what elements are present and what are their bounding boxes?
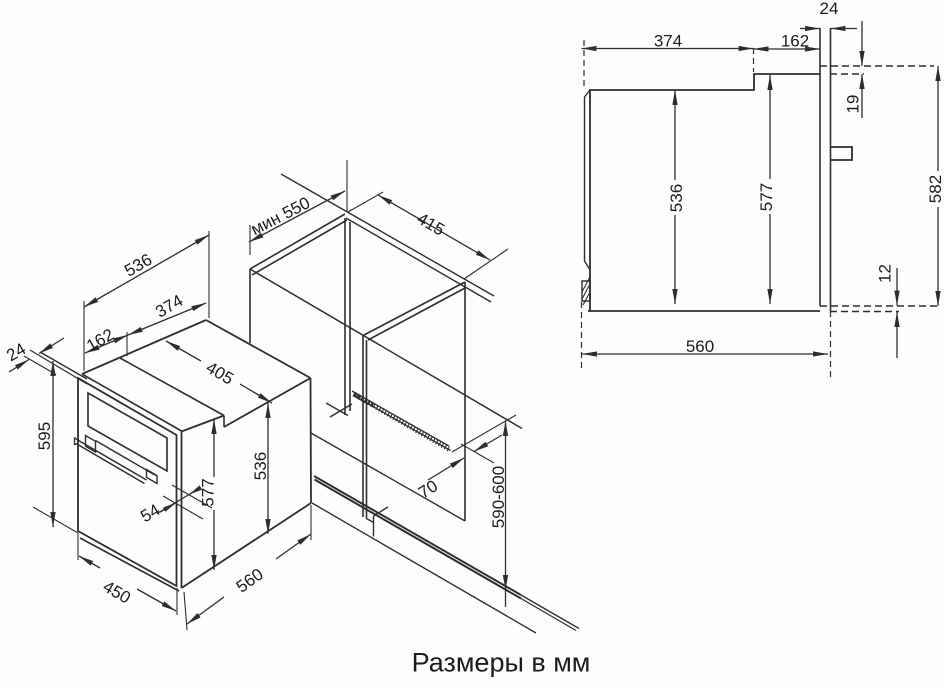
svg-text:374: 374 — [654, 32, 682, 51]
svg-text:582: 582 — [926, 175, 944, 203]
svg-text:24: 24 — [820, 0, 839, 18]
svg-text:595: 595 — [35, 422, 54, 450]
svg-text:577: 577 — [757, 183, 776, 211]
svg-text:162: 162 — [781, 32, 809, 51]
svg-text:Размеры в мм: Размеры в мм — [412, 648, 591, 678]
svg-text:19: 19 — [844, 95, 863, 114]
svg-text:536: 536 — [667, 184, 686, 212]
svg-text:590-600: 590-600 — [489, 466, 508, 528]
svg-text:536: 536 — [251, 452, 270, 480]
svg-text:12: 12 — [876, 264, 895, 283]
svg-text:560: 560 — [686, 337, 714, 356]
